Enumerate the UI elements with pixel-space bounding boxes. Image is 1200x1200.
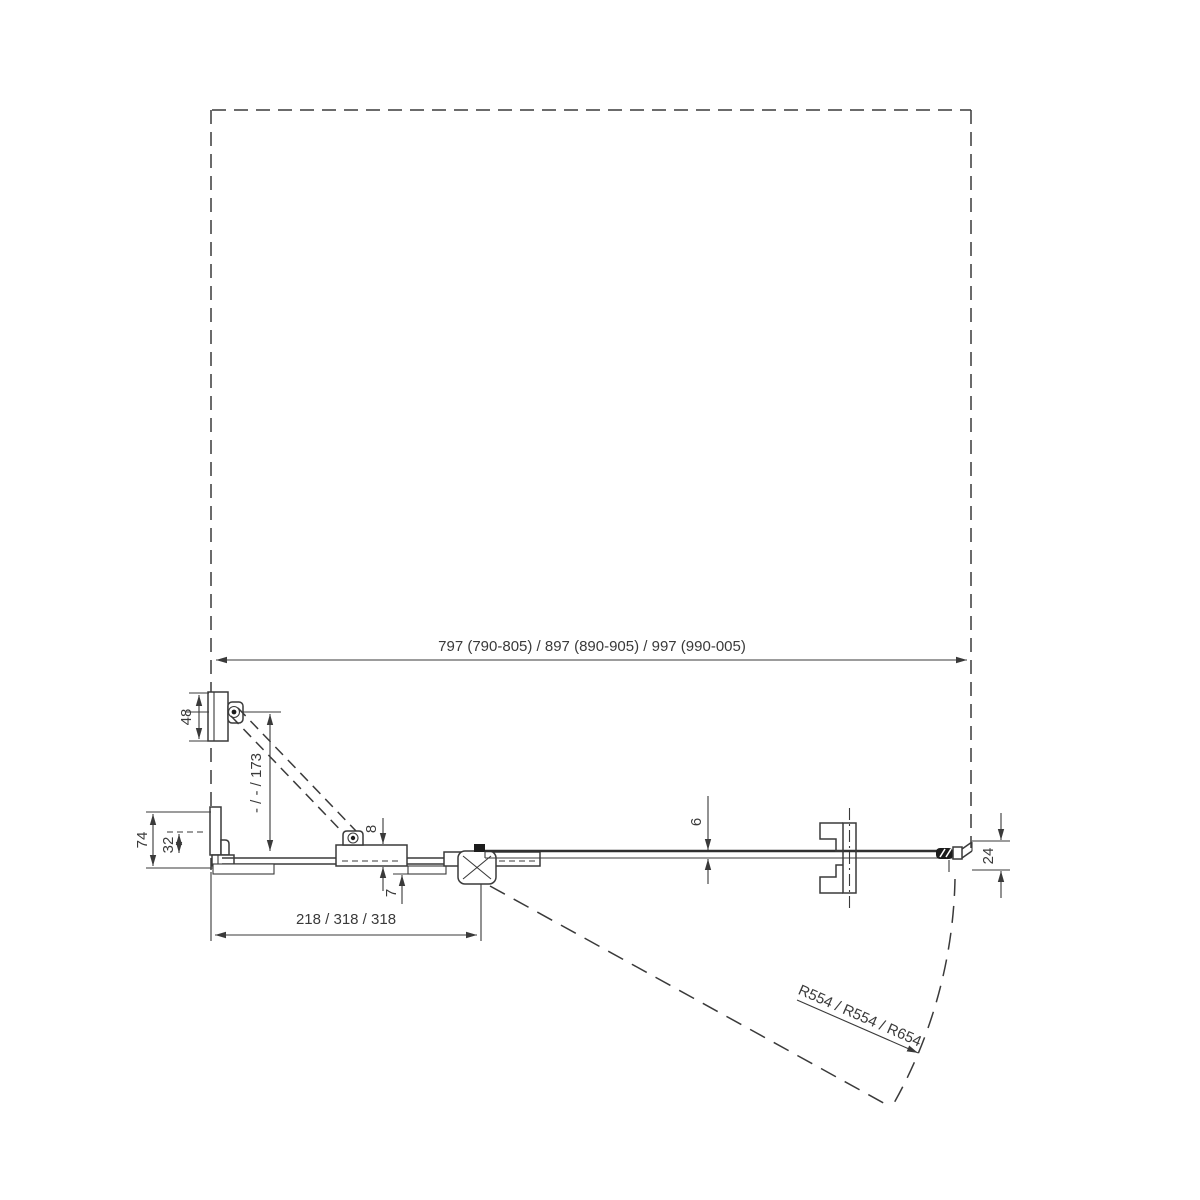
bottom-seal-right	[408, 866, 446, 874]
swing-radius-text: R554 / R554 / R654	[796, 982, 924, 1051]
glass-thickness-text: 6	[688, 818, 705, 826]
wall-outline	[211, 110, 971, 870]
radius-annotation: R554 / R554 / R654	[795, 982, 926, 1053]
guide-bracket-bottom-flange	[820, 865, 843, 893]
shower-door-technical-drawing: 797 (790-805) / 897 (890-905) / 997 (990…	[0, 0, 1200, 1200]
door-swing: R554 / R554 / R654	[490, 879, 955, 1110]
fixed-segment-width-text: 218 / 318 / 318	[296, 911, 396, 928]
fixed-panel: 8 7	[213, 818, 483, 904]
drawing-canvas: 797 (790-805) / 897 (890-905) / 997 (990…	[0, 0, 1200, 1200]
wall-bracket: 48	[178, 692, 243, 741]
hinge-cap	[474, 844, 485, 852]
door-handle	[936, 848, 953, 859]
profile-adjustment-text: 32	[160, 837, 177, 854]
door-end-cap	[953, 847, 962, 859]
support-bar-length-text: - / - / 173	[248, 753, 265, 813]
overall-width-text: 797 (790-805) / 897 (890-905) / 997 (990…	[438, 638, 746, 655]
clamp-pivot-pin	[351, 836, 355, 840]
support-bar-clamp	[336, 845, 407, 866]
bracket-pivot-pin	[232, 710, 237, 715]
wall-profile-foot	[221, 840, 229, 855]
panel-offset-text: 7	[383, 889, 400, 897]
left-wall-profile: 74 32	[134, 807, 234, 868]
glass-offset-text: 8	[363, 825, 380, 833]
bottom-seal-left	[213, 864, 274, 874]
guide-bracket-top-flange	[820, 823, 843, 851]
support-bar: - / - / 173	[231, 708, 356, 851]
wall-profile-body	[210, 807, 221, 855]
swing-arc	[890, 879, 955, 1110]
bracket-height-text: 48	[178, 709, 195, 726]
profile-depth-text: 74	[134, 832, 151, 849]
dim-overall-width: 797 (790-805) / 897 (890-905) / 997 (990…	[216, 638, 967, 660]
door-end-slant	[962, 851, 972, 858]
door-panel: 6 24	[485, 796, 1010, 908]
edge-clearance-text: 24	[980, 848, 997, 865]
bracket-plate	[208, 692, 228, 741]
